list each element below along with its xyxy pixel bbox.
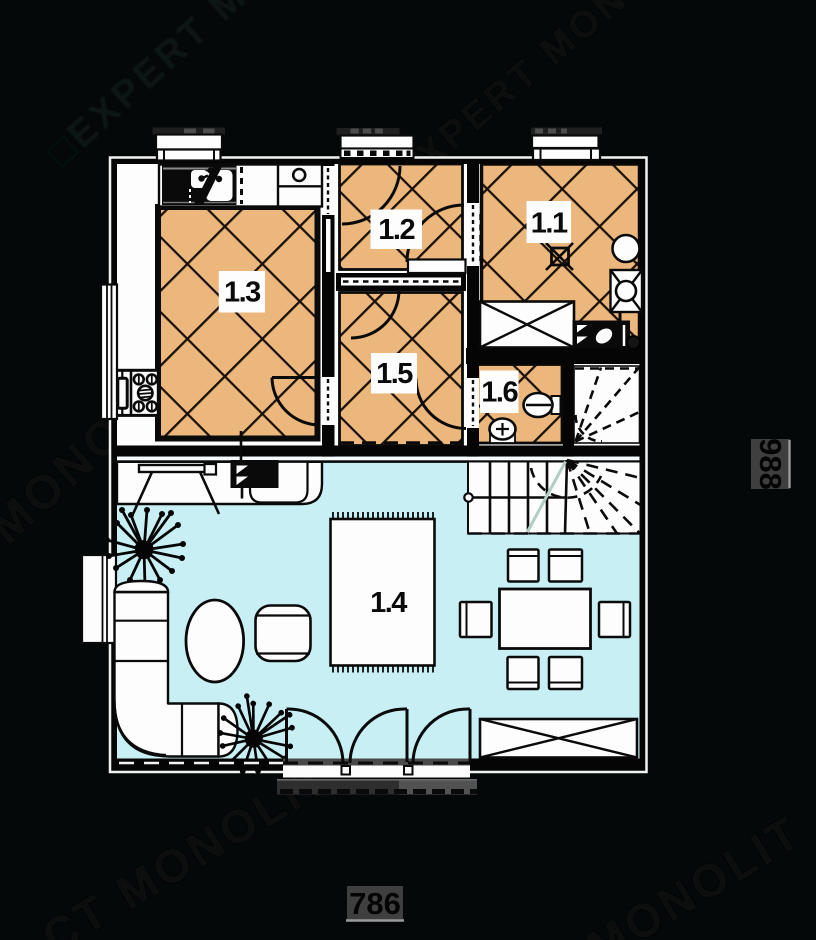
- svg-text:1.3: 1.3: [224, 277, 261, 309]
- svg-text:988: 988: [753, 438, 788, 490]
- svg-text:1.6: 1.6: [481, 377, 518, 409]
- svg-text:1.1: 1.1: [531, 208, 568, 240]
- svg-text:1.4: 1.4: [370, 587, 407, 619]
- svg-text:786: 786: [349, 886, 401, 921]
- svg-text:1.5: 1.5: [376, 358, 413, 390]
- svg-text:1.2: 1.2: [378, 214, 414, 246]
